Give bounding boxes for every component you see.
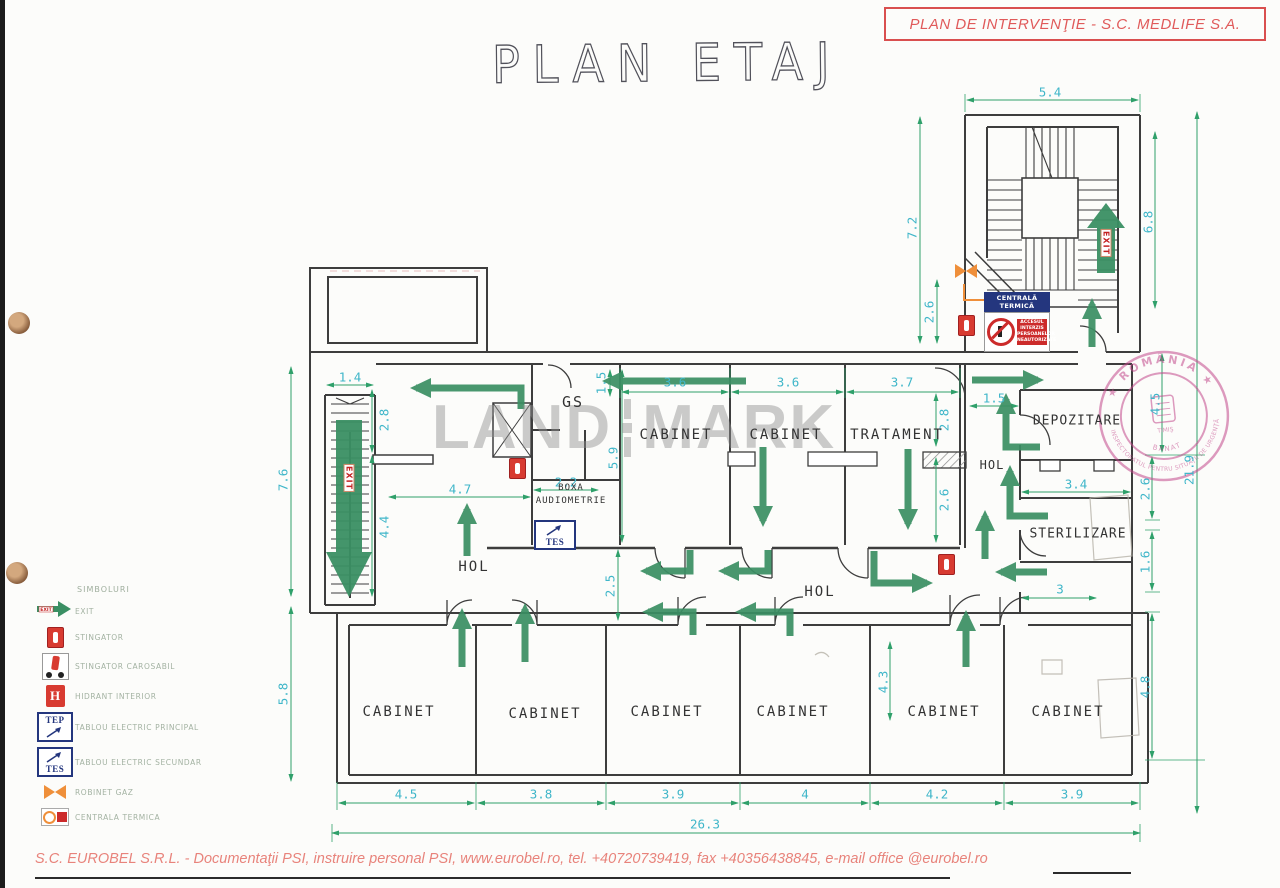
legend-item-label: TABLOU ELECTRIC SECUNDAR	[75, 758, 202, 767]
room-label: CABINET	[749, 427, 822, 443]
room-label: CABINET	[1031, 704, 1104, 720]
intervention-plan-title: PLAN DE INTERVENŢIE - S.C. MEDLIFE S.A.	[910, 16, 1241, 33]
scan-line	[35, 877, 950, 879]
room-label: HOL	[804, 584, 835, 600]
room-label: CABINET	[508, 706, 581, 722]
dimension-label: 2.6	[1138, 478, 1153, 501]
dimension-label: 7.6	[276, 469, 291, 492]
watermark-part1: LAND	[432, 392, 612, 463]
watermark-divider-icon	[622, 399, 632, 457]
boiler-room-sign: CENTRALĂ TERMICĂ ACCESULINTERZISPERSOANE…	[984, 292, 1050, 352]
legend-item-label: TABLOU ELECTRIC PRINCIPAL	[75, 723, 199, 732]
legend-item-label: HIDRANT INTERIOR	[75, 692, 157, 701]
dimension-label: 4.7	[449, 482, 472, 497]
dimension-label: 3.4	[1065, 477, 1088, 492]
room-label: DEPOZITARE	[1033, 414, 1121, 429]
room-label: GS	[562, 393, 584, 411]
dimension-label: 5.9	[606, 447, 621, 470]
legend-item: ROBINET GAZ	[35, 782, 250, 802]
dimension-label: 3.6	[664, 375, 687, 390]
scanned-floorplan-page: { "header": { "plan_box_label": "PLAN DE…	[0, 0, 1280, 888]
evacuation-arrow	[874, 551, 927, 583]
punch-hole	[6, 562, 28, 584]
dimension-label: 1.5	[983, 391, 1006, 406]
legend-item: TEPTABLOU ELECTRIC PRINCIPAL	[35, 712, 250, 742]
mobile-extinguisher-icon	[42, 653, 69, 680]
fire-extinguisher-icon	[47, 627, 64, 648]
punch-hole	[8, 312, 30, 334]
dimension-label: 1.5	[594, 372, 609, 395]
dimension-label: 1.6	[1138, 551, 1153, 574]
intervention-plan-title-box: PLAN DE INTERVENŢIE - S.C. MEDLIFE S.A.	[884, 7, 1266, 41]
legend-item: STINGATOR	[35, 627, 250, 648]
dimension-label: 4	[801, 787, 809, 802]
room-label: STERILIZARE	[1029, 527, 1126, 542]
evacuation-arrow	[724, 550, 768, 571]
dimension-label: 1.4	[339, 370, 362, 385]
gas-pipe	[964, 284, 984, 300]
gas-valve-icon	[44, 785, 66, 799]
scan-line	[1053, 872, 1131, 874]
dimension-label: 2.5	[603, 575, 618, 598]
dimension-ticks	[332, 94, 1205, 842]
room-label: CABINET	[639, 427, 712, 443]
room-label: TRATAMENT	[850, 427, 944, 443]
dimension-label: 4.8	[1138, 676, 1153, 699]
svg-text:EXIT: EXIT	[40, 607, 52, 613]
evacuation-arrow	[1010, 471, 1048, 516]
fire-extinguisher-icon	[958, 315, 975, 336]
dimension-label: 5.4	[1039, 85, 1062, 100]
page-title: PLAN ETAJ	[492, 31, 843, 95]
no-entry-icon	[987, 318, 1015, 346]
legend-title: SIMBOLURI	[77, 585, 250, 594]
legend: SIMBOLURI EXITEXITSTINGATORSTINGATOR CAR…	[35, 585, 250, 832]
room-label: HOL	[458, 559, 489, 575]
fire-extinguisher-icon	[509, 458, 526, 479]
dimension-label: 2.6	[937, 489, 952, 512]
room-label: HOL	[980, 458, 1005, 472]
gas-valve-icon	[955, 264, 977, 278]
dimension-label: 4.5	[395, 787, 418, 802]
stair-treads	[331, 127, 1118, 593]
boiler-icon	[41, 808, 69, 826]
stamp-text-center: TIMIŞ	[1156, 426, 1174, 435]
dimension-label: 4.5	[1148, 393, 1163, 416]
dimension-label: 3.9	[1061, 787, 1084, 802]
room-label: AUDIOMETRIE	[536, 496, 607, 506]
access-sign-line: NEAUTORIZATE	[1017, 338, 1047, 344]
tes-panel-icon: TES	[37, 747, 73, 777]
dimension-label: 4.3	[876, 671, 891, 694]
room-label: CABINET	[630, 704, 703, 720]
dimension-label: 4.2	[926, 787, 949, 802]
exit-tag: EXIT	[344, 464, 355, 492]
boiler-sign-header: CENTRALĂ TERMICĂ	[984, 292, 1050, 312]
legend-item-label: EXIT	[75, 607, 94, 616]
dimension-label: 3.9	[662, 787, 685, 802]
dimension-label: 2.6	[922, 301, 937, 324]
dimension-label: 6.8	[1141, 211, 1156, 234]
hydrant-icon: H	[46, 685, 65, 707]
exit-arrow-icon: EXIT	[37, 600, 73, 622]
footer-contact-line: S.C. EUROBEL S.R.L. - Documentaţii PSI, …	[35, 851, 988, 867]
room-label: CABINET	[907, 704, 980, 720]
legend-item-label: CENTRALA TERMICA	[75, 813, 160, 822]
dimension-label: 26.3	[690, 817, 720, 832]
legend-item-label: STINGATOR CAROSABIL	[75, 662, 175, 671]
dimension-label: 3	[1056, 582, 1064, 597]
evacuation-arrow	[646, 550, 690, 571]
dimension-label: 3.8	[530, 787, 553, 802]
dimension-label: 7.2	[905, 217, 920, 240]
room-label: CABINET	[362, 704, 435, 720]
tep-panel-icon: TEP	[37, 712, 73, 742]
stamp-text-inner: BANAT	[1151, 440, 1183, 454]
exit-arrow-down-left-stairs	[326, 420, 372, 597]
access-forbidden-sign: ACCESULINTERZISPERSOANELORNEAUTORIZATE	[1017, 319, 1047, 345]
legend-item: HHIDRANT INTERIOR	[35, 685, 250, 707]
dimension-label: 4.4	[377, 516, 392, 539]
dimension-label: 5.8	[276, 683, 291, 706]
room-label: BOXA	[558, 483, 584, 493]
exit-tag: EXIT	[1101, 229, 1112, 257]
tes-panel-icon: TES	[534, 520, 576, 550]
legend-item-label: ROBINET GAZ	[75, 788, 133, 797]
fire-extinguisher-icon	[938, 554, 955, 575]
scan-edge	[0, 0, 5, 888]
legend-item: TESTABLOU ELECTRIC SECUNDAR	[35, 747, 250, 777]
svg-text:BANAT: BANAT	[1151, 440, 1183, 454]
dimension-label: 3.6	[777, 375, 800, 390]
evacuation-arrow	[648, 612, 693, 635]
legend-item: CENTRALA TERMICA	[35, 807, 250, 827]
dimension-label: 3.7	[891, 375, 914, 390]
room-label: CABINET	[756, 704, 829, 720]
legend-item: STINGATOR CAROSABIL	[35, 653, 250, 680]
legend-item: EXITEXIT	[35, 600, 250, 622]
legend-item-label: STINGATOR	[75, 633, 124, 642]
dimension-label: 2.8	[377, 409, 392, 432]
dimension-label: 21.9	[1182, 455, 1197, 485]
